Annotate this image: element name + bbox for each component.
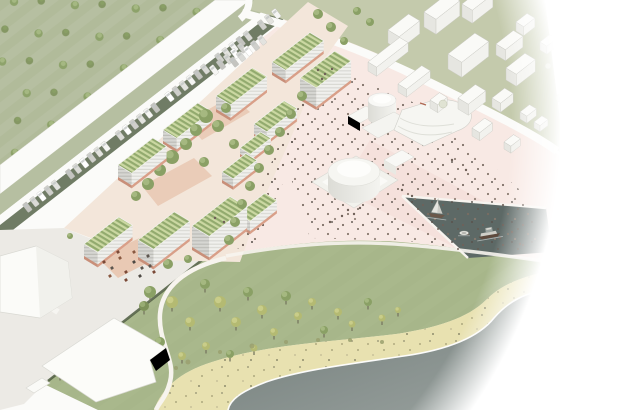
person-dot <box>331 68 333 70</box>
tree <box>142 178 154 190</box>
tree <box>237 199 247 209</box>
tree <box>229 139 239 149</box>
beach-bush <box>380 340 384 344</box>
ball-tree <box>589 143 595 149</box>
tree <box>67 233 73 239</box>
person-dot <box>401 189 403 191</box>
tree <box>221 103 231 113</box>
masterplan-svg <box>0 0 628 410</box>
tree <box>190 124 202 136</box>
tree <box>275 127 285 137</box>
tree <box>224 235 234 245</box>
tree <box>264 145 274 155</box>
tree <box>199 157 209 167</box>
tree <box>165 150 179 164</box>
beach-bush <box>284 340 288 344</box>
ball-tree <box>439 100 447 108</box>
ball-tree <box>545 63 551 69</box>
tree <box>340 37 348 45</box>
tree <box>180 138 192 150</box>
person-dot <box>324 73 326 75</box>
person-dot <box>321 78 323 80</box>
ball-tree <box>556 94 564 102</box>
tree <box>131 191 141 201</box>
tree <box>184 255 192 263</box>
beach-bush <box>174 366 178 370</box>
ball-tree <box>574 120 582 128</box>
tree <box>297 91 307 101</box>
person-dot <box>511 231 513 233</box>
masterplan-rendering <box>0 0 628 410</box>
tree <box>286 109 296 119</box>
beach-bush <box>250 344 255 349</box>
person-dot <box>214 217 216 219</box>
tree <box>230 217 240 227</box>
tree <box>212 120 224 132</box>
person-dot <box>411 195 413 197</box>
person-dot <box>317 69 319 71</box>
person-dot <box>451 159 453 161</box>
beach-bush <box>186 360 191 365</box>
person-dot <box>353 213 355 215</box>
tree <box>353 7 361 15</box>
person-dot <box>347 209 349 211</box>
beach-bush <box>348 338 352 342</box>
tree <box>245 181 255 191</box>
tree <box>366 18 374 26</box>
person-dot <box>465 169 467 171</box>
tree <box>326 22 336 32</box>
beach-bush <box>316 338 320 342</box>
person-dot <box>329 221 331 223</box>
tree <box>313 9 323 19</box>
vignette-scene <box>0 0 628 410</box>
person-dot <box>223 221 225 223</box>
beach-bush <box>218 350 222 354</box>
tree <box>199 109 213 123</box>
person-dot <box>519 243 521 245</box>
person-dot <box>341 215 343 217</box>
tree <box>254 163 264 173</box>
person-dot <box>359 207 361 209</box>
